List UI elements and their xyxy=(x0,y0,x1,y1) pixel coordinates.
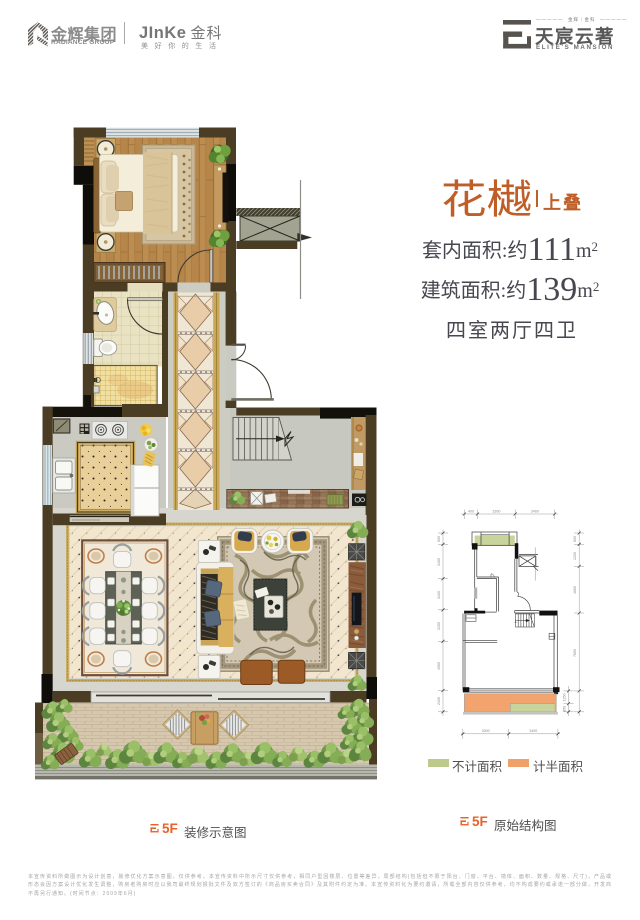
svg-text:4660: 4660 xyxy=(573,586,577,594)
svg-text:800: 800 xyxy=(573,536,577,542)
svg-text:2100: 2100 xyxy=(437,697,441,705)
svg-text:400: 400 xyxy=(468,510,474,514)
svg-text:3150: 3150 xyxy=(437,622,441,630)
svg-text:1250: 1250 xyxy=(563,694,567,702)
svg-text:3400: 3400 xyxy=(531,510,539,514)
svg-text:800: 800 xyxy=(437,536,441,542)
svg-text:花樾: 花樾 xyxy=(441,177,532,222)
svg-text:3400: 3400 xyxy=(529,729,537,733)
svg-text:4900: 4900 xyxy=(437,662,441,670)
svg-text:上: 上 xyxy=(514,619,518,624)
svg-text:3100: 3100 xyxy=(437,591,441,599)
svg-text:850: 850 xyxy=(563,706,567,712)
svg-text:3400: 3400 xyxy=(437,558,441,566)
svg-text:2200: 2200 xyxy=(573,552,577,560)
svg-text:3300: 3300 xyxy=(482,729,490,733)
svg-text:7800: 7800 xyxy=(573,649,577,657)
svg-text:3300: 3300 xyxy=(492,510,500,514)
